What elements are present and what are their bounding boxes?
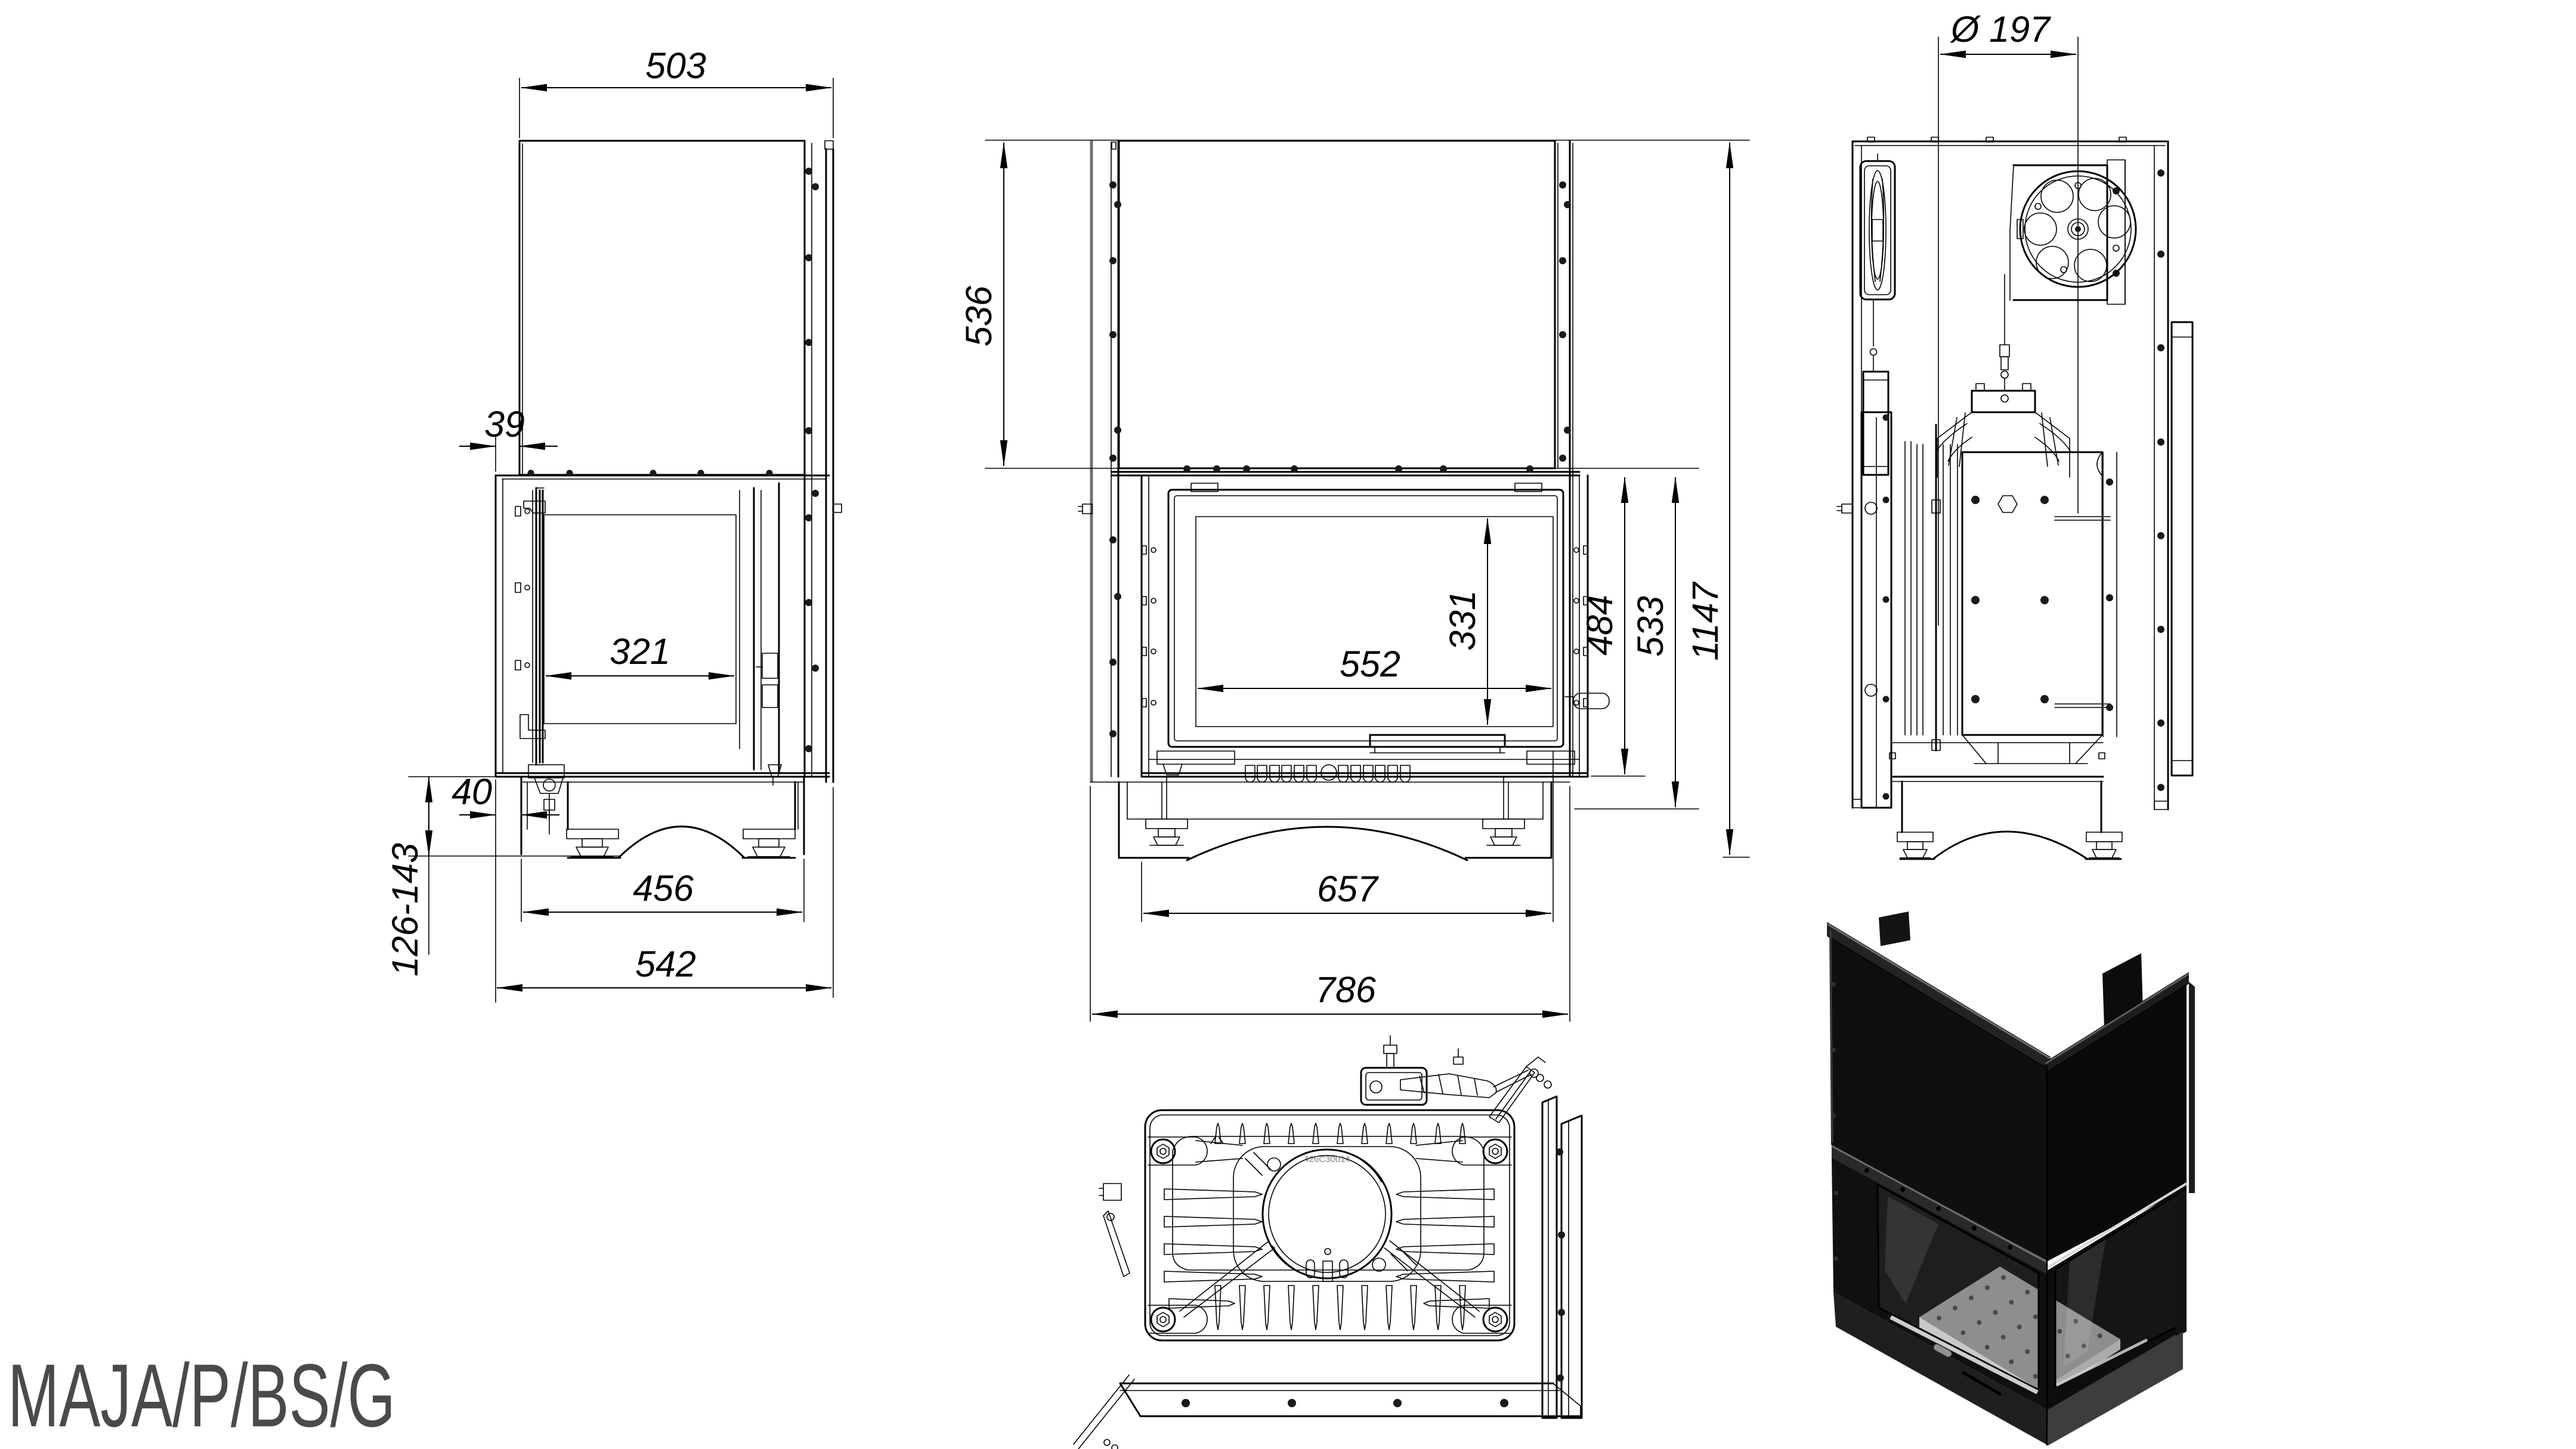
svg-text:426C30014: 426C30014 [1304,1154,1350,1164]
svg-text:542: 542 [635,944,696,984]
svg-text:126-143: 126-143 [385,843,425,977]
svg-text:MAJA/P/BS/G: MAJA/P/BS/G [8,1345,395,1445]
svg-text:533: 533 [1630,596,1671,657]
svg-text:786: 786 [1315,969,1376,1010]
svg-text:Ø 197: Ø 197 [1950,9,2051,50]
svg-text:552: 552 [1340,644,1400,684]
svg-text:40: 40 [452,771,492,812]
svg-text:321: 321 [610,631,670,672]
svg-text:39: 39 [484,404,525,444]
svg-text:456: 456 [633,868,694,909]
svg-text:503: 503 [645,45,706,86]
svg-text:484: 484 [1579,595,1620,656]
svg-text:536: 536 [958,286,999,347]
svg-text:657: 657 [1317,869,1379,909]
svg-text:1147: 1147 [1685,581,1725,660]
svg-text:331: 331 [1442,590,1483,651]
